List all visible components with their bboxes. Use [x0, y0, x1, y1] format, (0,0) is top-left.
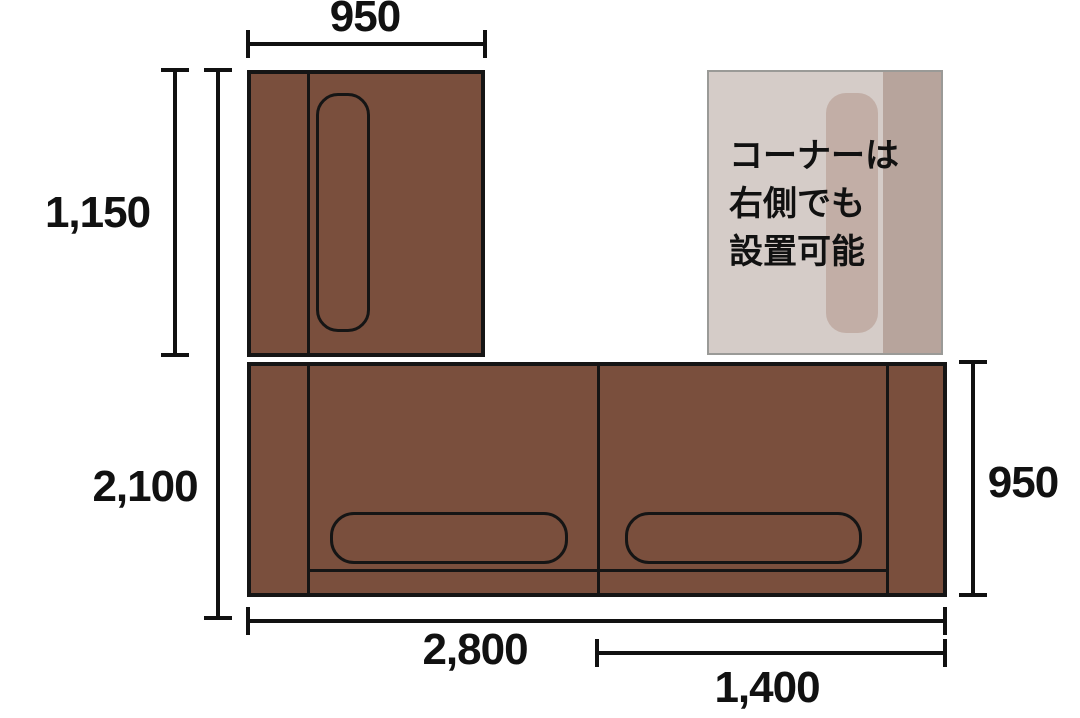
dim-tick-corner-depth-bottom: [161, 353, 189, 357]
dim-tick-total-depth-bottom: [204, 616, 232, 620]
dim-tick-right-width-right: [943, 639, 947, 667]
center-seat-divider: [597, 366, 600, 593]
dim-label-right-depth: 950: [963, 463, 1080, 503]
right-seat-cushion-outline: [625, 512, 862, 564]
dim-tick-right-depth-bottom: [959, 593, 987, 597]
note-line-1: コーナーは: [729, 132, 929, 180]
dim-line-right-depth: [971, 362, 975, 597]
dim-tick-right-width-left: [595, 639, 599, 667]
right-armrest-divider: [886, 366, 889, 593]
main-sofa-piece: [247, 362, 947, 597]
dim-label-total-width: 2,800: [385, 630, 565, 670]
dim-label-right-width: 1,400: [677, 668, 857, 708]
seat-front-edge: [307, 569, 889, 572]
corner-back-cushion-outline: [316, 93, 370, 332]
dim-line-total-width: [246, 619, 947, 623]
dim-tick-total-width-right: [943, 607, 947, 635]
dim-tick-total-width-left: [246, 607, 250, 635]
dim-tick-top-width-right: [483, 30, 487, 58]
sofa-dimension-diagram: コーナーは 右側でも 設置可能 950 1,150 2,100 2,800 1,…: [0, 0, 1080, 718]
note-line-2: 右側でも: [729, 180, 929, 228]
dim-label-corner-depth: 1,150: [35, 193, 160, 233]
dim-line-total-depth: [216, 70, 220, 620]
dim-label-total-depth: 2,100: [80, 467, 210, 507]
dim-tick-right-depth-top: [959, 360, 987, 364]
dim-line-top-width: [246, 42, 487, 46]
corner-sofa-piece: [247, 70, 485, 357]
ghost-corner-piece-right-option: コーナーは 右側でも 設置可能: [707, 70, 943, 355]
dim-tick-total-depth-top: [204, 68, 232, 72]
left-armrest-divider: [307, 366, 310, 593]
note-line-3: 設置可能: [729, 228, 929, 276]
left-seat-cushion-outline: [330, 512, 568, 564]
dim-line-corner-depth: [173, 70, 177, 357]
dim-tick-top-width-left: [246, 30, 250, 58]
dim-tick-corner-depth-top: [161, 68, 189, 72]
dim-line-right-width: [595, 651, 947, 655]
dim-label-top-width: 950: [265, 0, 465, 37]
corner-placement-note: コーナーは 右側でも 設置可能: [729, 132, 929, 276]
corner-armrest-divider: [307, 74, 310, 353]
